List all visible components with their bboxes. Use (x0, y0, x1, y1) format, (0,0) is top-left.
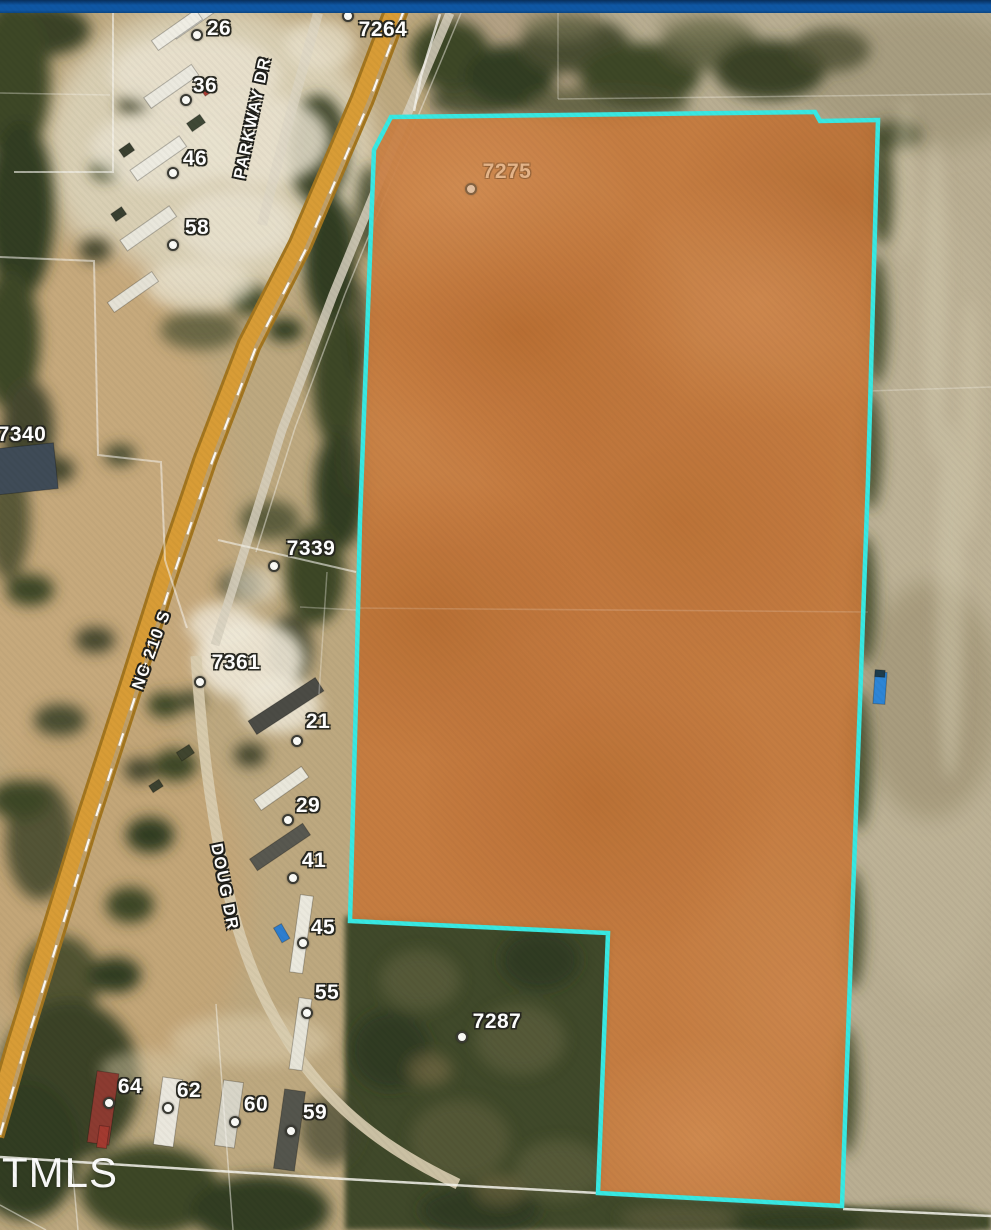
address-label: 45 (311, 916, 335, 940)
address-marker (297, 937, 309, 949)
header-bar (0, 0, 991, 13)
address-marker (103, 1097, 115, 1109)
road-label: NC 210 S (129, 607, 175, 692)
road-label: DOUG DR (206, 842, 242, 932)
address-marker (167, 239, 179, 251)
address-marker (285, 1125, 297, 1137)
address-label: 7340 (0, 423, 46, 447)
address-marker (456, 1031, 468, 1043)
address-label: 59 (303, 1101, 327, 1125)
address-label: 36 (193, 74, 217, 98)
address-label: 7287 (473, 1010, 522, 1034)
address-marker (291, 735, 303, 747)
address-marker (268, 560, 280, 572)
address-label: 64 (118, 1075, 142, 1099)
address-label: 55 (315, 981, 339, 1005)
address-label: 46 (183, 147, 207, 171)
address-marker (194, 676, 206, 688)
map-view[interactable]: 2636465872647340727573397361212941455572… (0, 0, 991, 1230)
address-marker (465, 183, 477, 195)
address-marker (282, 814, 294, 826)
road-label: PARKWAY DR (231, 55, 276, 181)
address-label: 7361 (212, 651, 261, 675)
address-marker (162, 1102, 174, 1114)
tmls-watermark: TMLS (2, 1149, 118, 1197)
address-marker (167, 167, 179, 179)
address-marker (287, 872, 299, 884)
address-label: 21 (306, 710, 330, 734)
address-marker (301, 1007, 313, 1019)
address-marker (180, 94, 192, 106)
address-label: 7275 (483, 160, 532, 184)
address-label: 58 (185, 216, 209, 240)
address-label: 29 (296, 794, 320, 818)
address-label: 60 (244, 1093, 268, 1117)
address-label: 26 (207, 17, 231, 41)
address-label: 62 (177, 1079, 201, 1103)
map-labels-layer: 2636465872647340727573397361212941455572… (0, 0, 991, 1230)
address-marker (229, 1116, 241, 1128)
address-label: 41 (302, 849, 326, 873)
address-marker (191, 29, 203, 41)
address-label: 7264 (359, 18, 408, 42)
address-label: 7339 (287, 537, 336, 561)
